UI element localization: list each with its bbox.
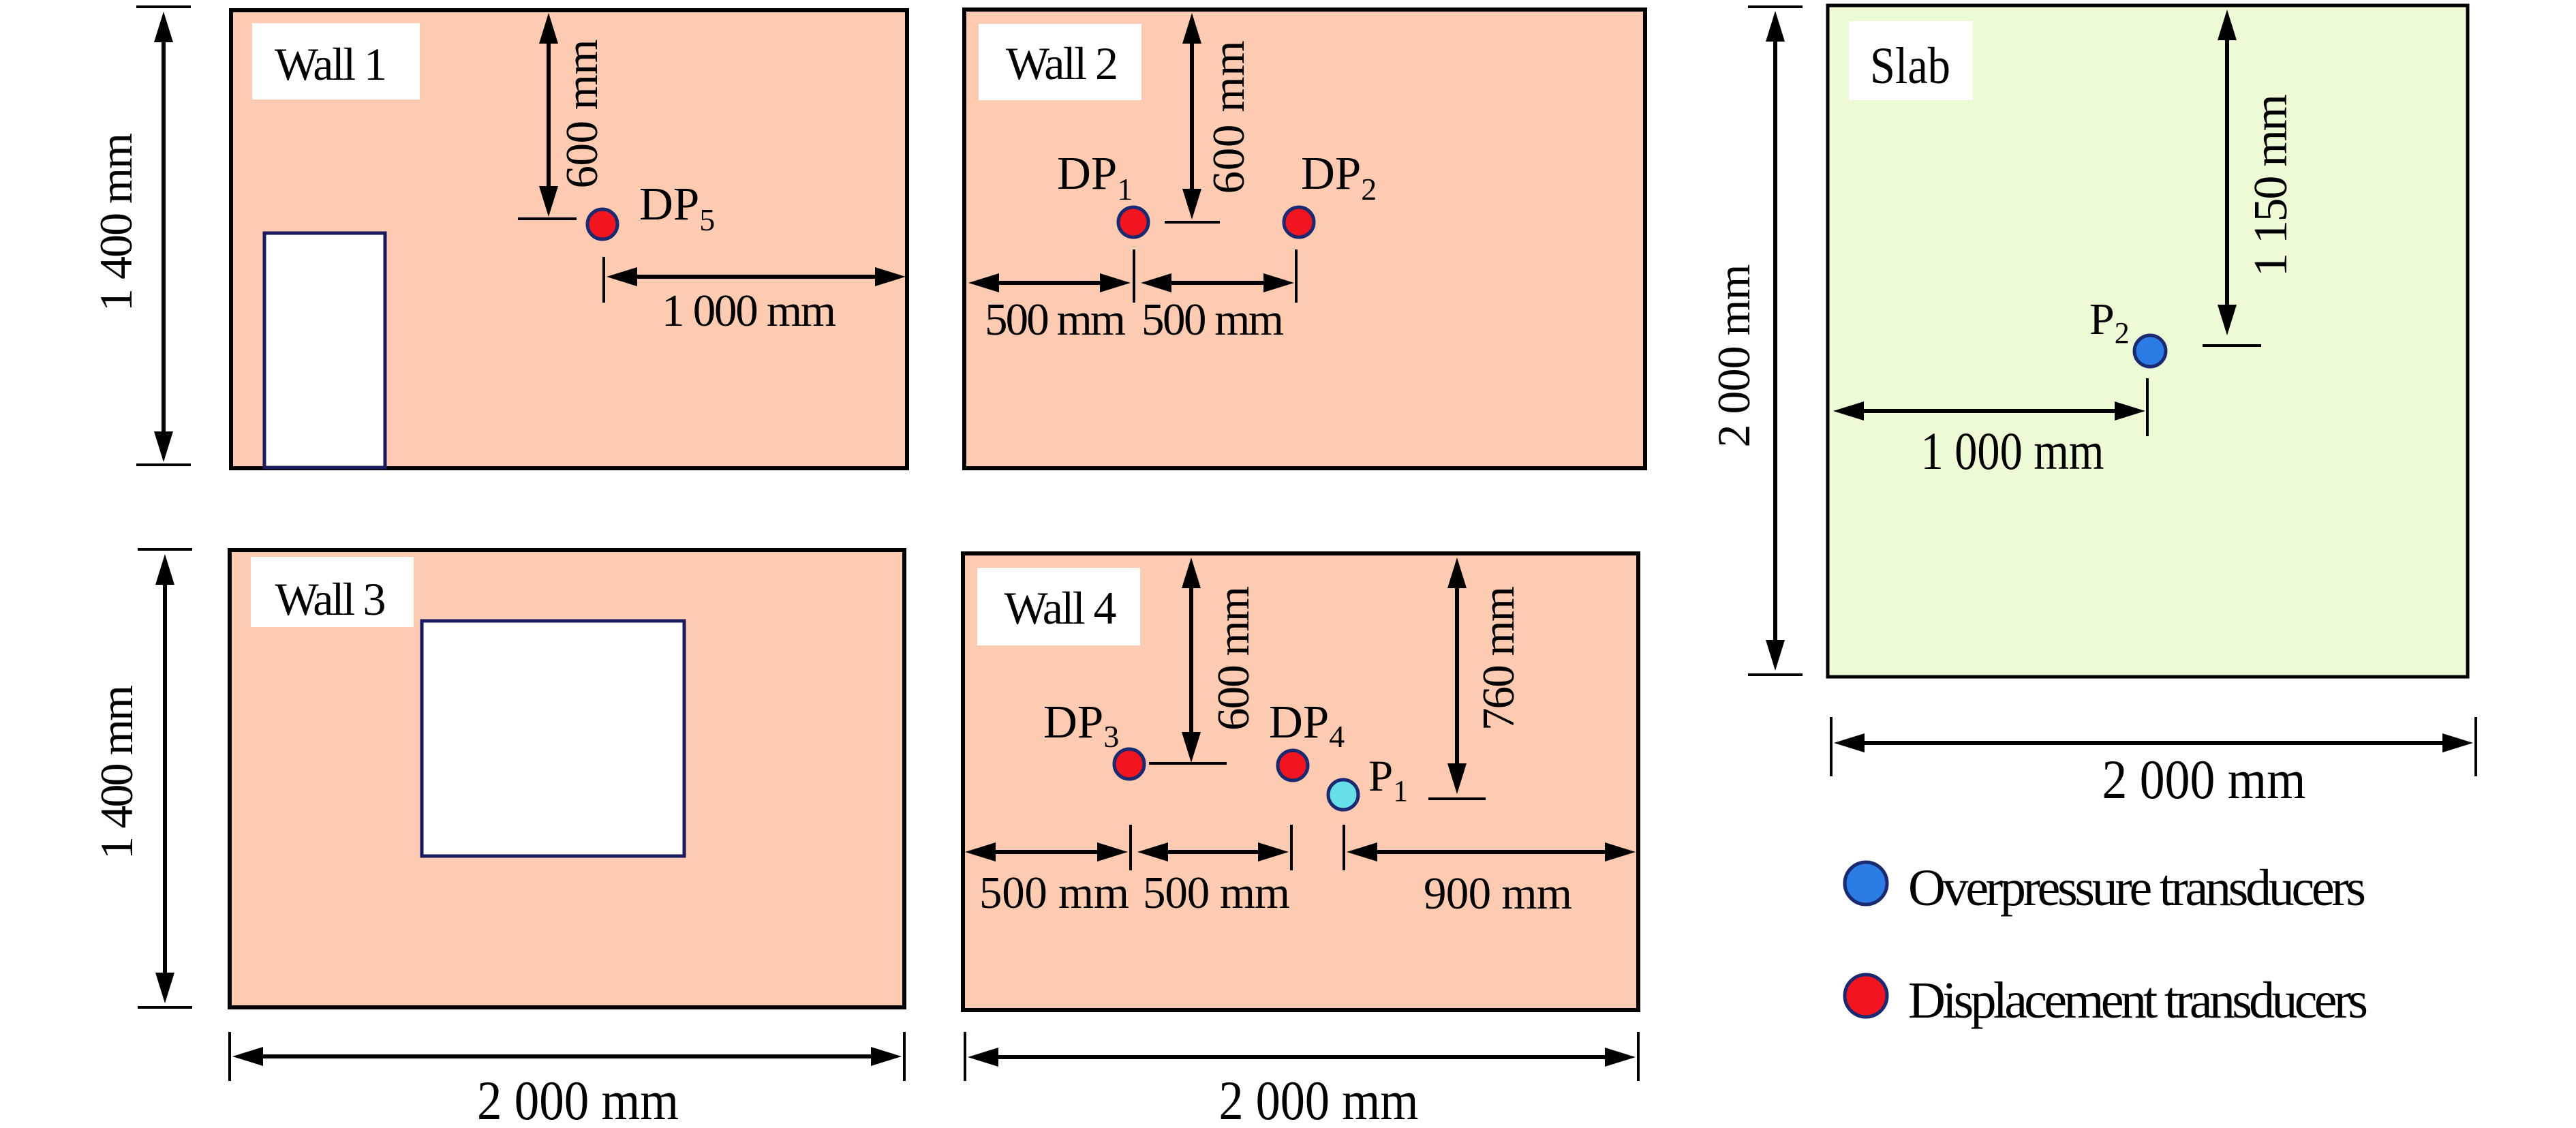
svg-text:1 400 mm: 1 400 mm xyxy=(90,133,142,311)
svg-text:1 150 mm: 1 150 mm xyxy=(2245,94,2297,277)
svg-text:600 mm: 600 mm xyxy=(1203,41,1254,194)
svg-text:Wall 3: Wall 3 xyxy=(275,573,386,625)
svg-text:Wall 4: Wall 4 xyxy=(1005,582,1117,634)
svg-text:Overpressure transducers: Overpressure transducers xyxy=(1908,859,2366,917)
svg-text:Wall 1: Wall 1 xyxy=(275,38,387,90)
svg-text:2 000 mm: 2 000 mm xyxy=(2102,748,2306,810)
svg-text:600 mm: 600 mm xyxy=(1208,586,1259,731)
svg-text:500 mm: 500 mm xyxy=(979,868,1129,918)
svg-text:1 000 mm: 1 000 mm xyxy=(1921,421,2104,481)
svg-text:900 mm: 900 mm xyxy=(1424,868,1572,919)
svg-text:2 000 mm: 2 000 mm xyxy=(1219,1069,1419,1128)
svg-text:760 mm: 760 mm xyxy=(1473,586,1524,731)
svg-text:500 mm: 500 mm xyxy=(1141,294,1284,345)
svg-text:Displacement transducers: Displacement transducers xyxy=(1908,972,2368,1029)
svg-text:1 000 mm: 1 000 mm xyxy=(662,286,836,336)
svg-text:500 mm: 500 mm xyxy=(985,294,1126,345)
svg-text:600 mm: 600 mm xyxy=(557,40,607,189)
svg-text:2 000 mm: 2 000 mm xyxy=(1708,264,1760,448)
svg-text:2 000 mm: 2 000 mm xyxy=(477,1069,679,1128)
svg-text:Slab: Slab xyxy=(1870,37,1950,95)
svg-text:1 400 mm: 1 400 mm xyxy=(91,685,142,859)
svg-text:Wall 2: Wall 2 xyxy=(1006,37,1118,89)
svg-text:500 mm: 500 mm xyxy=(1143,868,1290,918)
